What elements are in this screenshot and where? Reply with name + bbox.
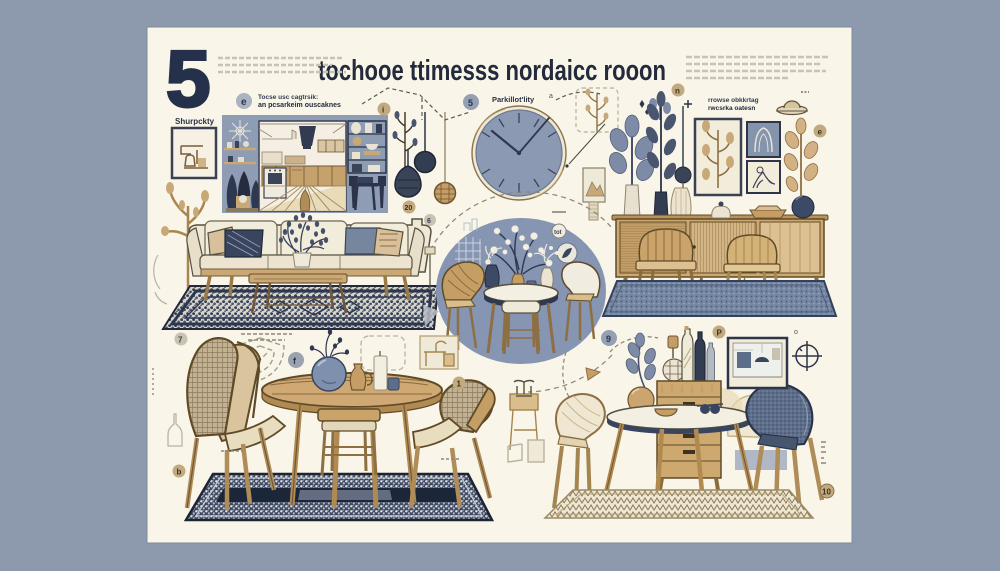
svg-text:rwcsrka oatesn: rwcsrka oatesn [708, 105, 755, 112]
svg-text:e: e [241, 97, 247, 108]
svg-text:Parkillot'lity: Parkillot'lity [492, 95, 535, 104]
svg-text:Shurpckty: Shurpckty [175, 117, 215, 126]
svg-text:o: o [794, 329, 798, 336]
svg-text:1: 1 [457, 380, 462, 389]
svg-text:Tocse usc cagtrsik:: Tocse usc cagtrsik: [258, 94, 318, 101]
svg-text:5: 5 [468, 98, 473, 108]
svg-text:rrowse obkkrtag: rrowse obkkrtag [708, 97, 759, 104]
svg-text:a: a [549, 93, 553, 100]
svg-text:an pcsarkeim ouscaknes: an pcsarkeim ouscaknes [258, 102, 341, 109]
svg-text:P: P [717, 329, 723, 338]
svg-text:5: 5 [166, 34, 209, 123]
svg-text:9: 9 [606, 334, 611, 344]
svg-text:tochooe ttimesss nordaicc rooo: tochooe ttimesss nordaicc rooon [318, 55, 666, 87]
svg-text:7: 7 [178, 336, 183, 345]
svg-text:10: 10 [822, 488, 831, 497]
svg-text:b: b [177, 468, 182, 477]
svg-text:6: 6 [427, 218, 431, 225]
svg-text:20: 20 [405, 205, 413, 212]
svg-text:tot: tot [554, 230, 562, 236]
svg-text:i: i [382, 106, 384, 115]
svg-text:n: n [675, 87, 680, 96]
svg-text:e: e [818, 128, 823, 137]
